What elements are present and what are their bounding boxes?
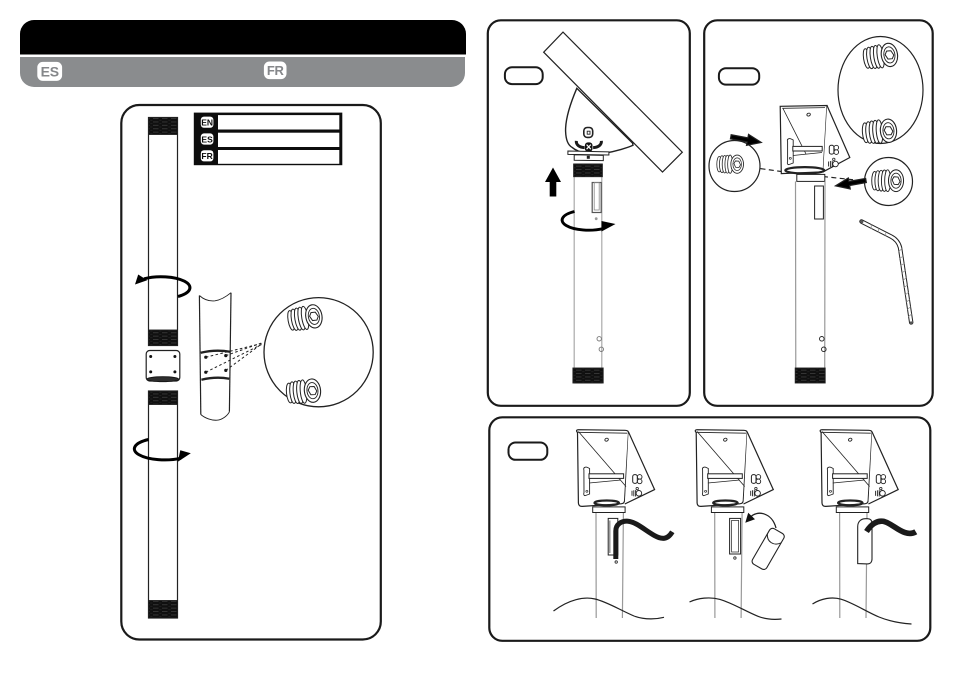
svg-text:FR: FR (201, 151, 212, 161)
svg-text:EN: EN (201, 118, 213, 128)
svg-text:FR: FR (267, 63, 285, 78)
svg-text:ES: ES (41, 64, 59, 80)
svg-text:ES: ES (201, 134, 213, 144)
